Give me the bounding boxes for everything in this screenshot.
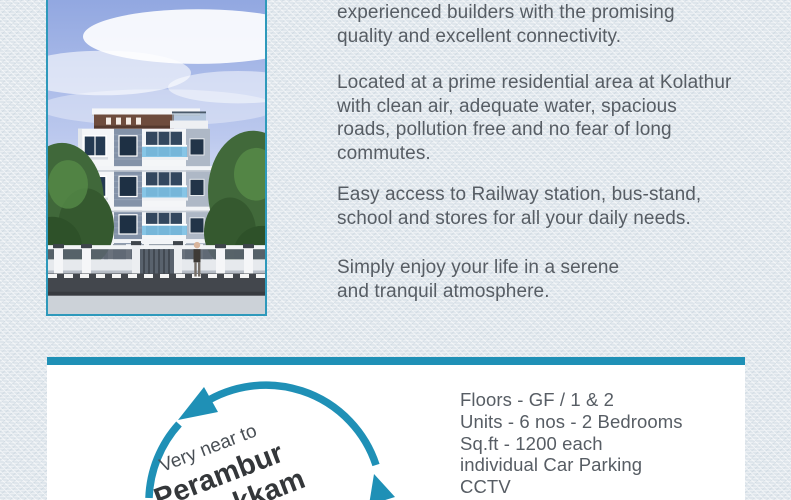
feature-item-units: Units - 6 nos - 2 Bedrooms <box>460 411 740 433</box>
intro-paragraph-4: Simply enjoy your life in a serene and t… <box>337 256 791 303</box>
intro-paragraph-1: experienced builders with the promising … <box>337 1 791 48</box>
building-photo-frame <box>46 0 267 316</box>
road <box>48 273 265 314</box>
feature-item-sqft: Sq.ft - 1200 each <box>460 433 740 455</box>
intro-text-block: experienced builders with the promising … <box>337 0 791 356</box>
highlights-card: Very near to Perambur Villivakkam Floors… <box>47 357 745 500</box>
flyer-page: experienced builders with the promising … <box>0 0 791 500</box>
arrowhead-right <box>369 474 395 500</box>
feature-item-parking: individual Car Parking <box>460 454 740 476</box>
features-list: Floors - GF / 1 & 2 Units - 6 nos - 2 Be… <box>460 389 740 500</box>
intro-paragraph-3: Easy access to Railway station, bus-stan… <box>337 183 791 230</box>
building-illustration <box>48 0 265 314</box>
compound-wall <box>48 241 265 275</box>
feature-item-cctv: CCTV <box>460 476 740 498</box>
arrowhead-top-left <box>178 387 218 420</box>
intro-paragraph-2: Located at a prime residential area at K… <box>337 71 791 165</box>
feature-item-floors: Floors - GF / 1 & 2 <box>460 389 740 411</box>
card-accent-bar <box>47 357 745 365</box>
